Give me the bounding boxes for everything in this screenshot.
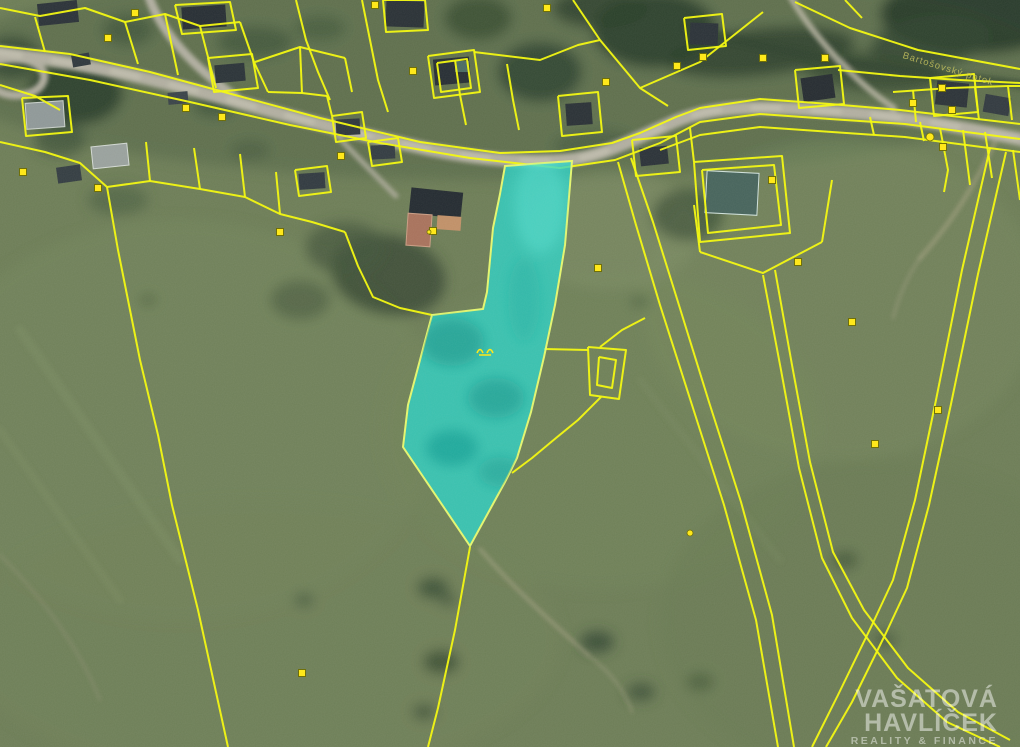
listing-map-image: Bartošovský potok VAŠATOVÁ HAVLÍČEK REAL… bbox=[0, 0, 1020, 747]
map-svg: Bartošovský potok VAŠATOVÁ HAVLÍČEK REAL… bbox=[0, 0, 1020, 747]
watermark: VAŠATOVÁ HAVLÍČEK REALITY & FINANCE bbox=[851, 683, 998, 747]
watermark-line2: HAVLÍČEK bbox=[864, 707, 998, 737]
grain-texture bbox=[0, 0, 1020, 747]
watermark-line3: REALITY & FINANCE bbox=[851, 735, 998, 747]
